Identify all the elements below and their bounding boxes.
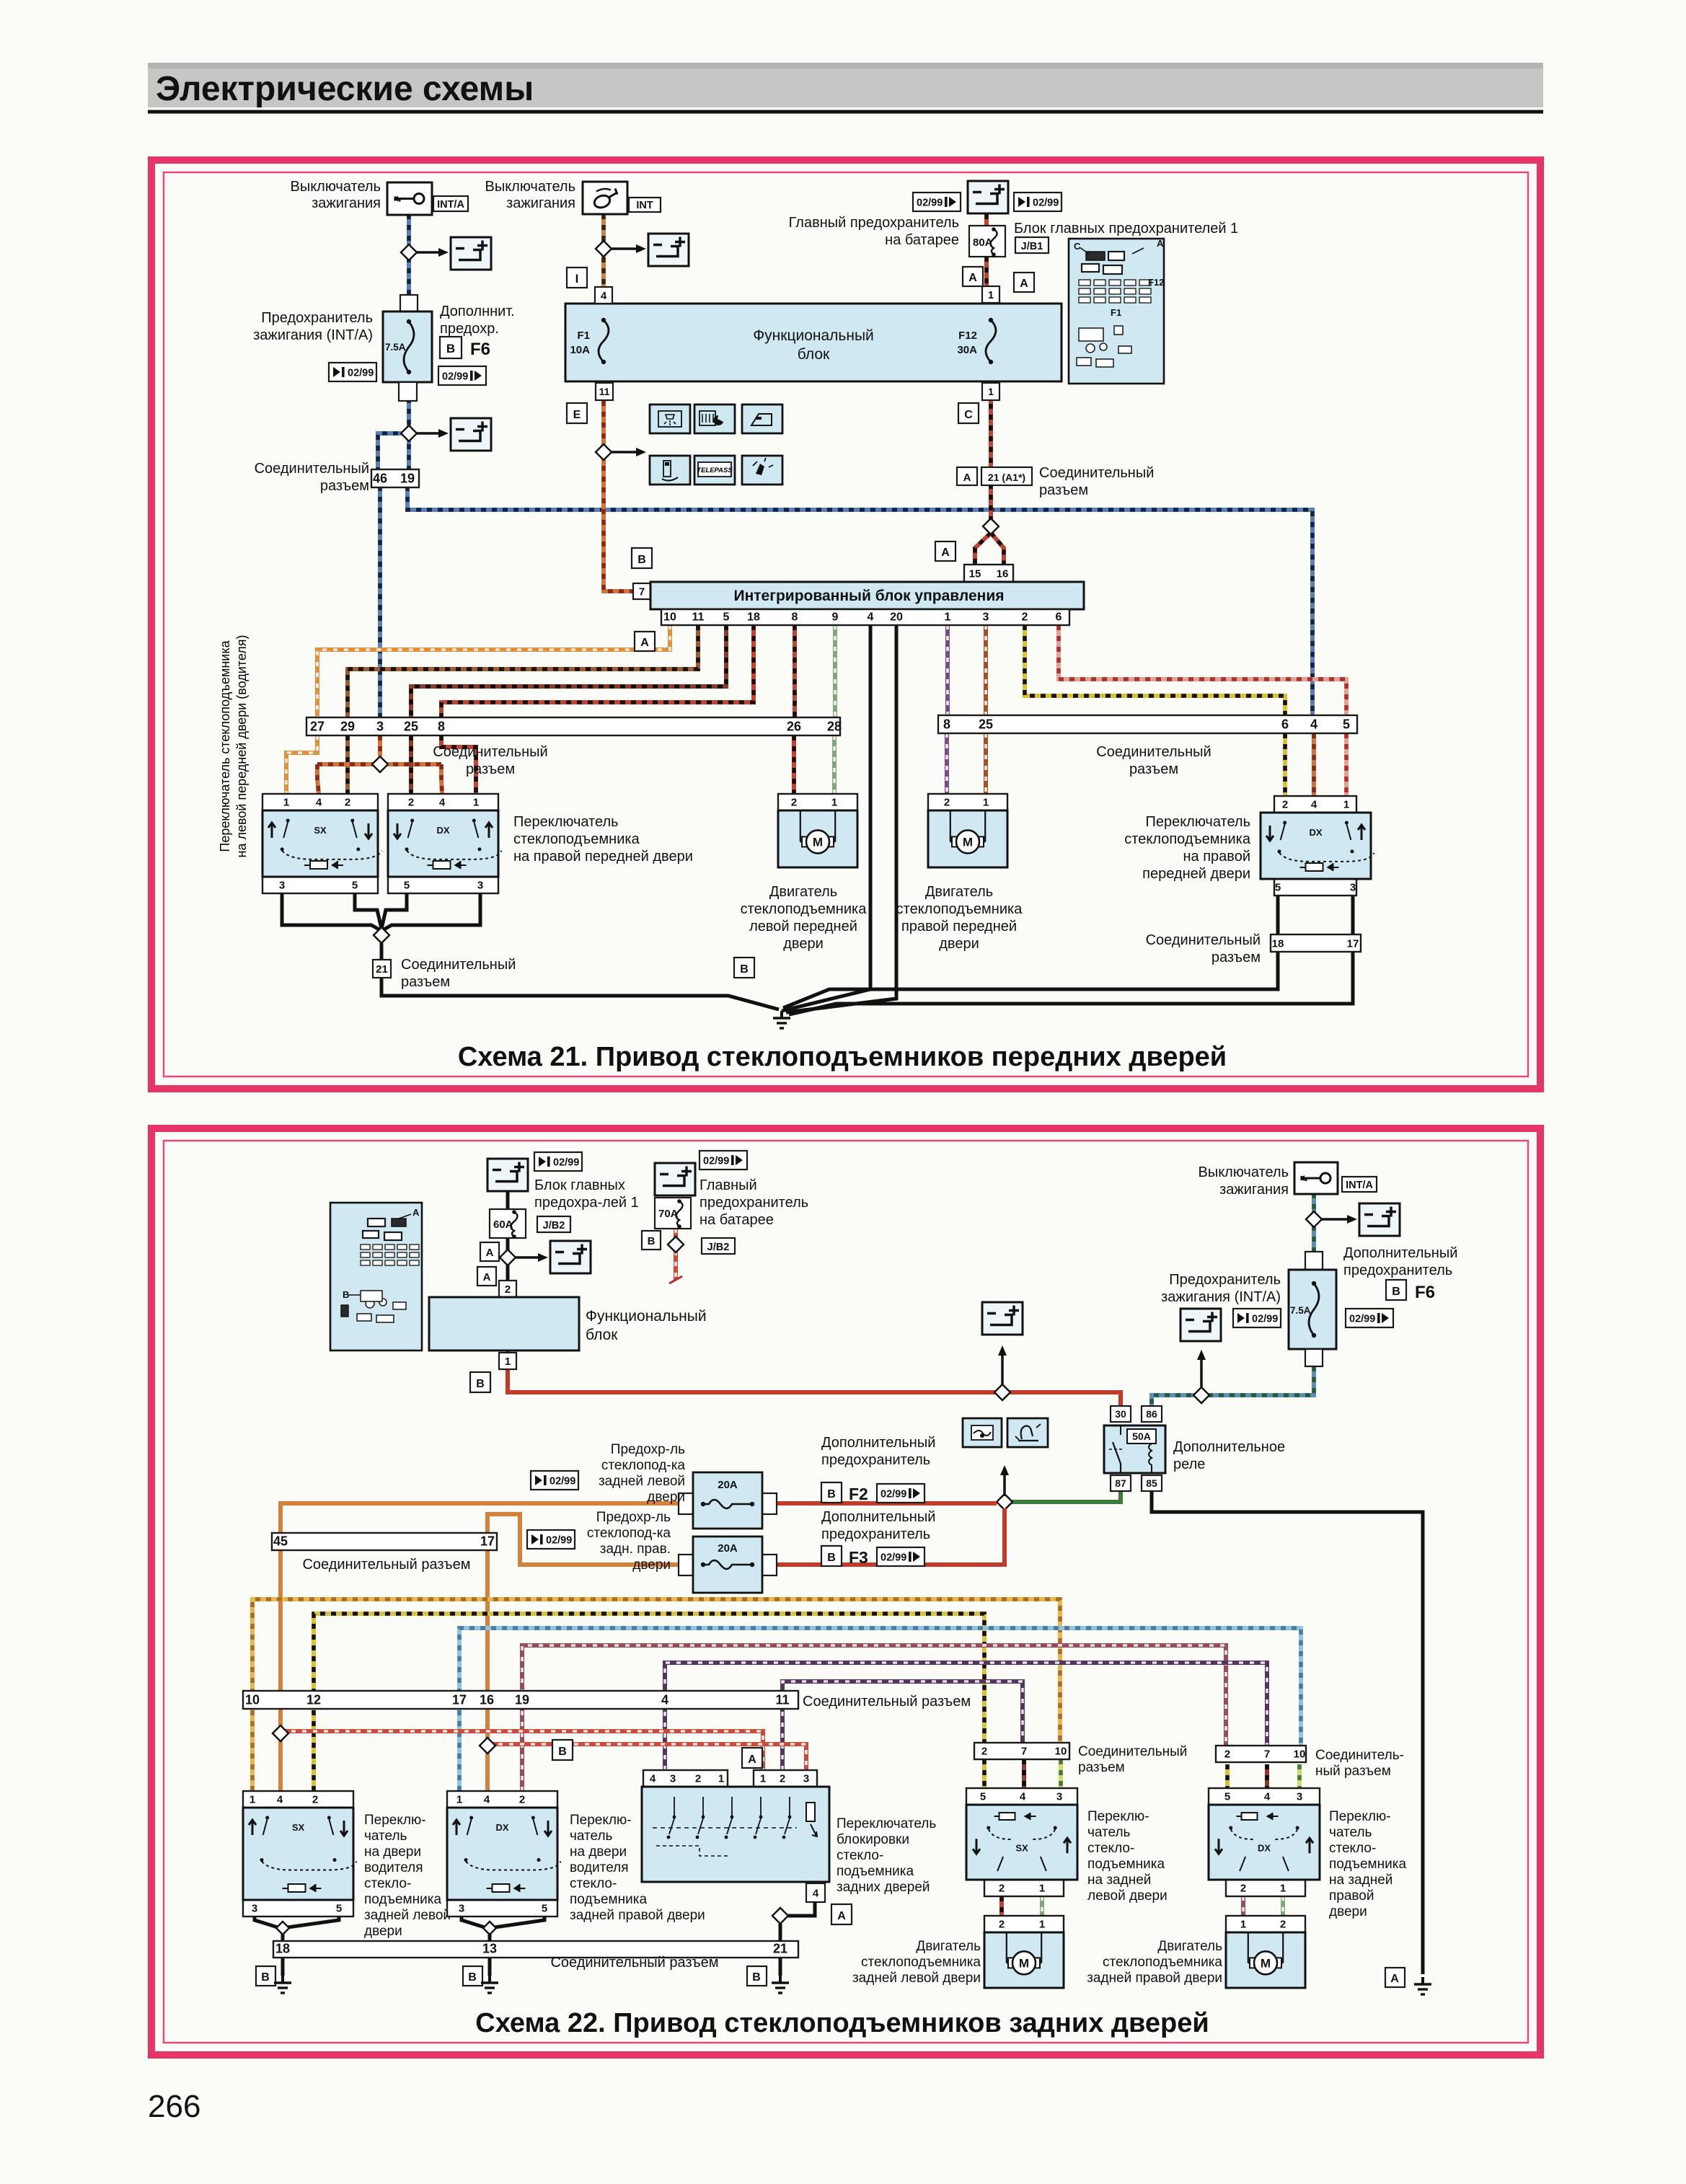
svg-text:B: B <box>558 1746 567 1758</box>
svg-text:чатель: чатель <box>570 1829 613 1844</box>
svg-text:5: 5 <box>352 880 358 892</box>
svg-text:предохранитель: предохранитель <box>821 1452 930 1468</box>
svg-text:DX: DX <box>436 825 449 836</box>
svg-text:17: 17 <box>1347 938 1359 950</box>
svg-text:задних дверей: задних дверей <box>837 1880 930 1895</box>
svg-text:4: 4 <box>1020 1791 1026 1803</box>
svg-text:B: B <box>637 554 646 566</box>
svg-text:задней левой двери: задней левой двери <box>852 1971 981 1986</box>
svg-text:разъем: разъем <box>1211 950 1261 965</box>
svg-text:25: 25 <box>979 717 993 732</box>
svg-text:1: 1 <box>1240 1919 1246 1931</box>
svg-text:Двигатель: Двигатель <box>925 884 993 900</box>
svg-text:Дополнительный: Дополнительный <box>821 1435 935 1451</box>
svg-text:11: 11 <box>692 611 705 624</box>
svg-text:стекло-: стекло- <box>1329 1841 1376 1856</box>
svg-text:стеклоподъемника: стеклоподъемника <box>896 901 1023 917</box>
svg-text:20: 20 <box>890 611 903 624</box>
svg-text:2: 2 <box>999 1883 1005 1895</box>
svg-text:A: A <box>1390 1973 1399 1985</box>
svg-text:Двигатель: Двигатель <box>769 884 837 900</box>
svg-text:F3: F3 <box>849 1548 868 1567</box>
svg-text:на батарее: на батарее <box>885 232 959 248</box>
svg-text:Соединительный разъем: Соединительный разъем <box>302 1557 470 1573</box>
svg-text:двери: двери <box>647 1490 685 1505</box>
svg-text:4: 4 <box>601 290 607 302</box>
svg-text:17: 17 <box>452 1693 467 1707</box>
svg-text:Блок главных: Блок главных <box>534 1177 625 1193</box>
svg-text:13: 13 <box>482 1942 497 1956</box>
svg-text:4: 4 <box>650 1773 656 1785</box>
svg-text:зажигания (INT/A): зажигания (INT/A) <box>253 327 373 343</box>
svg-text:3: 3 <box>376 720 384 734</box>
svg-text:двери: двери <box>939 936 979 952</box>
svg-text:Главный предохранитель: Главный предохранитель <box>789 215 959 231</box>
svg-text:B: B <box>476 1378 485 1390</box>
svg-text:Предохранитель: Предохранитель <box>261 310 373 326</box>
svg-text:C: C <box>964 409 973 421</box>
svg-text:10A: 10A <box>570 344 590 356</box>
svg-text:F6: F6 <box>470 340 490 359</box>
svg-text:4: 4 <box>661 1693 668 1707</box>
svg-text:B: B <box>752 1971 761 1984</box>
svg-text:1: 1 <box>505 1356 511 1368</box>
svg-text:Выключатель: Выключатель <box>485 179 575 195</box>
svg-text:предохра-лей 1: предохра-лей 1 <box>534 1195 639 1211</box>
svg-text:70A: 70A <box>658 1208 679 1220</box>
svg-text:стеклопод-ка: стеклопод-ка <box>587 1526 671 1541</box>
svg-text:21 (A1*): 21 (A1*) <box>988 472 1025 483</box>
svg-text:12: 12 <box>306 1693 321 1707</box>
svg-text:J/B2: J/B2 <box>543 1220 565 1232</box>
svg-text:Дополнительный: Дополнительный <box>821 1509 935 1525</box>
svg-text:02/99: 02/99 <box>880 1489 906 1500</box>
svg-text:Предохр-ль: Предохр-ль <box>611 1442 685 1457</box>
svg-text:80A: 80A <box>973 236 993 249</box>
svg-text:Функциональный: Функциональный <box>753 327 874 344</box>
svg-text:18: 18 <box>747 611 760 624</box>
svg-text:передней двери: передней двери <box>1142 866 1250 882</box>
svg-text:4: 4 <box>1310 717 1318 732</box>
svg-text:стеклоподъемника: стеклоподъемника <box>741 901 868 917</box>
svg-text:INT: INT <box>636 200 653 211</box>
svg-text:3: 3 <box>477 880 483 892</box>
svg-text:стекло-: стекло- <box>570 1876 617 1891</box>
svg-text:2: 2 <box>505 1283 511 1296</box>
svg-text:30A: 30A <box>957 344 977 356</box>
svg-text:2: 2 <box>695 1773 701 1785</box>
svg-text:на батарее: на батарее <box>699 1212 774 1228</box>
svg-text:зажигания (INT/A): зажигания (INT/A) <box>1161 1289 1281 1305</box>
svg-text:Переключатель стеклоподъемника: Переключатель стеклоподъемника <box>218 640 232 852</box>
svg-text:30: 30 <box>1115 1408 1126 1420</box>
svg-text:разъем: разъем <box>1129 761 1178 777</box>
svg-text:стекло-: стекло- <box>1087 1841 1134 1856</box>
svg-text:1: 1 <box>983 797 989 809</box>
svg-text:2: 2 <box>1022 611 1028 624</box>
svg-text:8: 8 <box>438 720 445 734</box>
svg-text:2: 2 <box>312 1794 318 1806</box>
svg-text:правой: правой <box>1329 1888 1374 1904</box>
svg-text:Переключатель: Переключатель <box>513 814 619 830</box>
svg-text:Соединительный: Соединительный <box>255 461 369 477</box>
svg-text:чатель: чатель <box>1087 1825 1131 1840</box>
svg-text:B: B <box>446 342 455 355</box>
svg-text:двери: двери <box>632 1557 671 1573</box>
svg-text:5: 5 <box>404 880 410 892</box>
svg-text:F2: F2 <box>849 1485 868 1503</box>
svg-text:левой двери: левой двери <box>1087 1888 1168 1904</box>
svg-text:F1: F1 <box>1111 307 1121 318</box>
svg-text:SX: SX <box>1015 1842 1028 1853</box>
svg-text:Блок главных предохранителей 1: Блок главных предохранителей 1 <box>1014 221 1238 236</box>
svg-text:Соединительный: Соединительный <box>1078 1744 1187 1759</box>
svg-text:45: 45 <box>273 1534 288 1549</box>
svg-text:02/99: 02/99 <box>1252 1314 1278 1325</box>
svg-text:1: 1 <box>988 386 994 397</box>
svg-text:блок: блок <box>586 1327 618 1343</box>
svg-text:2: 2 <box>999 1919 1005 1931</box>
svg-text:J/B1: J/B1 <box>1021 241 1043 252</box>
svg-text:10: 10 <box>1294 1748 1306 1761</box>
svg-text:M: M <box>1019 1956 1029 1970</box>
svg-text:3: 3 <box>803 1773 809 1785</box>
svg-text:A: A <box>748 1754 756 1766</box>
svg-text:левой передней: левой передней <box>749 919 857 934</box>
svg-text:3: 3 <box>1350 882 1356 894</box>
svg-text:20A: 20A <box>718 1542 738 1555</box>
svg-text:5: 5 <box>1275 882 1281 894</box>
svg-text:4: 4 <box>868 611 874 624</box>
svg-text:A: A <box>640 637 649 649</box>
svg-text:Двигатель: Двигатель <box>1157 1939 1222 1954</box>
svg-text:5: 5 <box>980 1791 986 1803</box>
svg-text:2: 2 <box>408 797 414 809</box>
svg-text:18: 18 <box>275 1942 290 1956</box>
svg-text:подъемника: подъемника <box>837 1864 914 1879</box>
svg-text:2: 2 <box>791 797 797 809</box>
svg-text:19: 19 <box>515 1693 529 1707</box>
svg-text:1: 1 <box>1343 799 1349 811</box>
svg-text:A: A <box>1157 238 1164 249</box>
svg-text:Функциональный: Функциональный <box>586 1308 707 1325</box>
svg-text:задней правой двери: задней правой двери <box>1087 1971 1222 1986</box>
svg-text:стеклоподъемника: стеклоподъемника <box>861 1955 981 1970</box>
svg-text:Переклю-: Переклю- <box>1329 1809 1391 1824</box>
svg-text:B: B <box>740 963 749 976</box>
svg-text:266: 266 <box>148 2089 200 2124</box>
svg-text:Дополннит.: Дополннит. <box>440 304 515 319</box>
svg-text:02/99: 02/99 <box>348 368 374 379</box>
svg-text:3: 3 <box>459 1903 464 1915</box>
svg-text:зажигания: зажигания <box>506 195 575 211</box>
svg-text:Выключатель: Выключатель <box>290 179 381 195</box>
svg-text:разъем: разъем <box>1078 1760 1125 1775</box>
svg-text:86: 86 <box>1146 1408 1157 1420</box>
svg-text:ный разъем: ный разъем <box>1315 1764 1391 1779</box>
svg-text:3: 3 <box>670 1773 676 1785</box>
svg-text:1: 1 <box>718 1773 724 1785</box>
svg-text:28: 28 <box>827 720 842 734</box>
svg-text:на двери: на двери <box>364 1844 421 1860</box>
svg-text:M: M <box>1261 1956 1271 1970</box>
svg-text:Переключатель: Переключатель <box>837 1816 936 1831</box>
svg-text:A: A <box>412 1207 420 1218</box>
svg-text:10: 10 <box>663 611 676 624</box>
svg-text:2: 2 <box>1280 1919 1286 1931</box>
svg-text:на задней: на задней <box>1329 1873 1393 1888</box>
svg-text:5: 5 <box>336 1903 342 1915</box>
svg-text:Электрические схемы: Электрические схемы <box>156 70 534 108</box>
svg-text:Соединительный разъем: Соединительный разъем <box>550 1955 718 1971</box>
svg-text:чатель: чатель <box>364 1829 407 1844</box>
svg-text:зажигания: зажигания <box>1219 1182 1289 1198</box>
svg-text:A: A <box>963 472 971 484</box>
svg-text:Предохр-ль: Предохр-ль <box>596 1510 671 1525</box>
svg-text:1: 1 <box>473 797 479 809</box>
svg-text:подъемника: подъемника <box>570 1892 647 1907</box>
svg-text:3: 3 <box>279 880 285 892</box>
svg-text:3: 3 <box>1056 1791 1062 1803</box>
svg-text:4: 4 <box>1311 799 1318 811</box>
svg-text:3: 3 <box>983 611 989 624</box>
svg-text:J/B2: J/B2 <box>707 1242 730 1253</box>
svg-text:A: A <box>483 1271 491 1283</box>
svg-text:задней правой двери: задней правой двери <box>570 1908 705 1923</box>
svg-text:60A: 60A <box>493 1219 513 1231</box>
svg-text:на двери: на двери <box>570 1844 627 1860</box>
svg-text:стеклопод-ка: стеклопод-ка <box>601 1458 686 1473</box>
svg-text:7.5A: 7.5A <box>385 342 406 353</box>
svg-text:предохранитель: предохранитель <box>1343 1263 1452 1278</box>
svg-text:Главный: Главный <box>699 1177 757 1193</box>
svg-text:02/99: 02/99 <box>442 371 468 383</box>
svg-text:5: 5 <box>1224 1791 1230 1803</box>
svg-text:2: 2 <box>1240 1883 1246 1895</box>
svg-text:B: B <box>343 1289 349 1300</box>
svg-text:подъемника: подъемника <box>1087 1857 1165 1872</box>
svg-text:INT/A: INT/A <box>437 199 464 211</box>
svg-text:02/99: 02/99 <box>917 198 943 209</box>
svg-text:подъемника: подъемника <box>364 1892 441 1907</box>
svg-text:29: 29 <box>340 720 355 734</box>
svg-text:7: 7 <box>1021 1746 1027 1758</box>
svg-text:F12: F12 <box>1148 277 1164 288</box>
svg-text:Выключатель: Выключатель <box>1198 1164 1289 1180</box>
svg-text:M: M <box>963 835 973 849</box>
svg-text:блокировки: блокировки <box>837 1832 909 1847</box>
svg-text:задней левой: задней левой <box>364 1908 451 1923</box>
svg-text:чатель: чатель <box>1329 1825 1372 1840</box>
svg-text:B: B <box>261 1971 270 1984</box>
svg-text:на задней: на задней <box>1087 1873 1151 1888</box>
svg-text:16: 16 <box>997 568 1009 580</box>
svg-text:5: 5 <box>723 611 730 624</box>
svg-text:11: 11 <box>775 1693 789 1707</box>
svg-text:02/99: 02/99 <box>553 1157 579 1169</box>
svg-text:Соединительный: Соединительный <box>401 957 516 973</box>
svg-text:Переклю-: Переклю- <box>1087 1809 1149 1824</box>
svg-text:E: E <box>573 409 581 421</box>
svg-text:A: A <box>837 1910 846 1922</box>
svg-text:5: 5 <box>1343 717 1350 732</box>
svg-text:87: 87 <box>1115 1477 1126 1489</box>
svg-text:C: C <box>1074 241 1081 252</box>
svg-text:разъем: разъем <box>1039 482 1088 498</box>
svg-text:SX: SX <box>292 1822 305 1833</box>
svg-text:2: 2 <box>519 1794 525 1806</box>
svg-text:TELEPASS: TELEPASS <box>697 467 733 474</box>
svg-text:46: 46 <box>373 472 387 486</box>
svg-text:85: 85 <box>1146 1477 1157 1489</box>
svg-text:DX: DX <box>1258 1842 1271 1853</box>
svg-text:F12: F12 <box>958 330 977 342</box>
svg-text:водителя: водителя <box>364 1860 423 1875</box>
svg-text:7: 7 <box>639 585 645 598</box>
svg-text:3: 3 <box>252 1903 257 1915</box>
svg-text:B: B <box>827 1488 836 1500</box>
svg-text:стеклоподъемника: стеклоподъемника <box>513 831 640 847</box>
svg-text:подъемника: подъемника <box>1329 1857 1406 1872</box>
svg-text:11: 11 <box>599 386 610 397</box>
svg-text:Соединительный: Соединительный <box>433 744 547 760</box>
svg-text:Соединительный: Соединительный <box>1146 932 1261 948</box>
svg-text:стеклоподъемника: стеклоподъемника <box>1124 831 1251 847</box>
svg-text:2: 2 <box>981 1746 987 1758</box>
svg-text:6: 6 <box>1281 717 1289 732</box>
svg-text:02/99: 02/99 <box>546 1535 572 1547</box>
svg-text:B: B <box>1392 1286 1400 1298</box>
svg-text:задней левой: задней левой <box>599 1474 685 1489</box>
svg-text:предохранитель: предохранитель <box>699 1195 808 1211</box>
svg-text:стекло-: стекло- <box>364 1876 411 1891</box>
svg-text:Дополнительный: Дополнительный <box>1343 1245 1457 1261</box>
svg-text:02/99: 02/99 <box>703 1156 729 1167</box>
svg-text:INT/A: INT/A <box>1346 1180 1373 1191</box>
svg-text:M: M <box>813 835 823 849</box>
svg-text:21: 21 <box>376 963 388 976</box>
svg-text:02/99: 02/99 <box>880 1552 906 1564</box>
svg-text:1: 1 <box>945 611 951 624</box>
svg-text:Схема 22. Привод стеклоподъемн: Схема 22. Привод стеклоподъемников задни… <box>475 2008 1209 2038</box>
svg-text:стеклоподъемника: стеклоподъемника <box>1103 1955 1222 1970</box>
svg-text:Переклю-: Переклю- <box>570 1813 632 1828</box>
svg-text:2: 2 <box>780 1773 785 1785</box>
svg-text:26: 26 <box>787 720 801 734</box>
svg-text:Двигатель: Двигатель <box>916 1939 981 1954</box>
svg-text:4: 4 <box>439 797 446 809</box>
svg-text:6: 6 <box>1056 611 1062 624</box>
svg-text:I: I <box>575 272 579 286</box>
svg-text:разъем: разъем <box>401 974 450 990</box>
svg-text:1: 1 <box>760 1773 766 1785</box>
svg-text:Соединительный: Соединительный <box>1039 465 1154 481</box>
svg-text:1: 1 <box>1280 1883 1286 1895</box>
svg-text:4: 4 <box>1264 1791 1271 1803</box>
svg-text:1: 1 <box>283 797 289 809</box>
svg-text:предохранитель: предохранитель <box>821 1526 930 1542</box>
svg-text:разъем: разъем <box>320 478 369 494</box>
svg-text:2: 2 <box>345 797 350 809</box>
svg-text:F1: F1 <box>577 330 590 342</box>
svg-text:двери: двери <box>1329 1904 1367 1919</box>
svg-text:Соединительный: Соединительный <box>1096 744 1211 760</box>
svg-text:1: 1 <box>1039 1883 1045 1895</box>
svg-text:1: 1 <box>988 289 994 301</box>
svg-text:Соединительный разъем: Соединительный разъем <box>803 1694 971 1710</box>
svg-text:реле: реле <box>1173 1456 1205 1472</box>
svg-text:5: 5 <box>542 1903 547 1915</box>
svg-text:на левой передней двери (водит: на левой передней двери (водителя) <box>234 635 249 858</box>
svg-text:водителя: водителя <box>570 1860 629 1875</box>
svg-text:1: 1 <box>456 1794 462 1806</box>
svg-text:19: 19 <box>400 472 415 486</box>
svg-text:02/99: 02/99 <box>1349 1314 1375 1325</box>
svg-text:задн. прав.: задн. прав. <box>600 1542 671 1557</box>
svg-text:двери: двери <box>364 1924 402 1939</box>
svg-text:разъем: разъем <box>466 761 515 777</box>
svg-text:A: A <box>1020 278 1028 290</box>
svg-text:8: 8 <box>943 717 950 732</box>
svg-text:2: 2 <box>1282 799 1288 811</box>
svg-text:15: 15 <box>969 568 981 580</box>
svg-text:SX: SX <box>314 825 327 836</box>
svg-text:F6: F6 <box>1415 1283 1435 1302</box>
svg-text:10: 10 <box>245 1693 260 1707</box>
svg-text:стекло-: стекло- <box>837 1848 883 1863</box>
svg-text:A: A <box>968 272 977 284</box>
svg-text:10: 10 <box>1055 1746 1067 1758</box>
svg-text:DX: DX <box>495 1822 508 1833</box>
svg-text:B: B <box>468 1971 477 1984</box>
svg-text:Переключатель: Переключатель <box>1145 814 1250 830</box>
svg-text:27: 27 <box>310 720 325 734</box>
svg-text:3: 3 <box>1297 1791 1302 1803</box>
svg-text:20A: 20A <box>718 1479 738 1491</box>
svg-text:1: 1 <box>250 1794 255 1806</box>
svg-text:4: 4 <box>484 1794 490 1806</box>
svg-text:B: B <box>827 1552 836 1564</box>
svg-text:DX: DX <box>1309 827 1322 838</box>
svg-text:на правой передней двери: на правой передней двери <box>513 849 693 865</box>
svg-text:Схема 21. Привод стеклоподъемн: Схема 21. Привод стеклоподъемников перед… <box>458 1042 1227 1072</box>
svg-text:правой передней: правой передней <box>901 919 1017 934</box>
svg-text:21: 21 <box>773 1942 787 1956</box>
svg-text:предохр.: предохр. <box>440 321 499 337</box>
svg-text:A: A <box>486 1247 494 1259</box>
svg-text:2: 2 <box>1224 1748 1230 1761</box>
svg-text:7: 7 <box>1264 1748 1270 1761</box>
svg-text:4: 4 <box>316 797 322 809</box>
svg-text:1: 1 <box>1039 1919 1045 1931</box>
svg-text:двери: двери <box>783 936 824 952</box>
svg-text:02/99: 02/99 <box>1033 198 1059 209</box>
svg-text:25: 25 <box>404 720 418 734</box>
svg-text:Дополнительное: Дополнительное <box>1173 1439 1285 1455</box>
svg-text:16: 16 <box>480 1693 494 1707</box>
svg-text:18: 18 <box>1272 938 1284 950</box>
svg-text:блок: блок <box>798 346 830 363</box>
svg-text:B: B <box>648 1235 656 1247</box>
svg-text:зажигания: зажигания <box>312 195 381 211</box>
svg-text:8: 8 <box>792 611 798 624</box>
svg-text:4: 4 <box>277 1794 283 1806</box>
svg-text:50A: 50A <box>1132 1431 1151 1442</box>
svg-text:Соединитель-: Соединитель- <box>1315 1748 1404 1763</box>
svg-text:1: 1 <box>831 797 837 809</box>
svg-text:Интегрированный блок управлени: Интегрированный блок управления <box>733 588 1004 604</box>
svg-text:7.5A: 7.5A <box>1290 1305 1311 1316</box>
